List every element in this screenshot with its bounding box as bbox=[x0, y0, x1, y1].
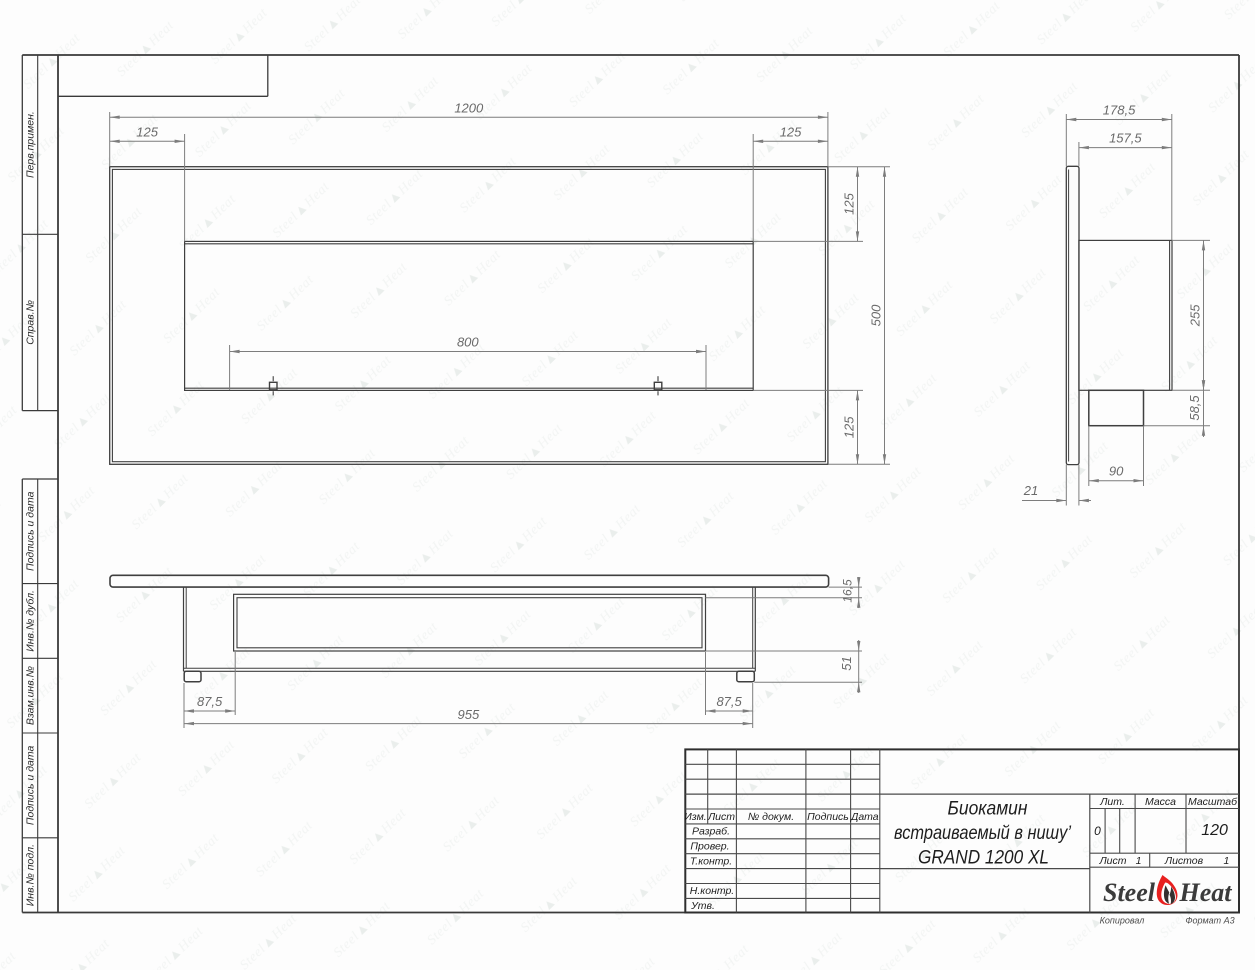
svg-text:800: 800 bbox=[457, 335, 479, 350]
svg-text:Провер.: Провер. bbox=[690, 841, 729, 853]
svg-text:GRAND 1200 XL: GRAND 1200 XL bbox=[918, 847, 1049, 868]
svg-text:157,5: 157,5 bbox=[1109, 131, 1142, 146]
svg-text:1200: 1200 bbox=[454, 101, 484, 116]
svg-text:Копировал: Копировал bbox=[1100, 916, 1145, 926]
svg-text:0: 0 bbox=[1094, 824, 1101, 838]
svg-text:21: 21 bbox=[1023, 483, 1038, 498]
svg-text:955: 955 bbox=[457, 707, 479, 722]
svg-text:1: 1 bbox=[1223, 855, 1229, 867]
svg-text:Формат А3: Формат А3 bbox=[1185, 916, 1234, 926]
svg-text:Подпись: Подпись bbox=[807, 811, 849, 823]
svg-text:178,5: 178,5 bbox=[1103, 103, 1136, 118]
svg-text:Утв.: Утв. bbox=[690, 900, 715, 912]
svg-text:125: 125 bbox=[842, 192, 857, 214]
svg-text:255: 255 bbox=[1188, 304, 1203, 327]
svg-text:Инв.№ дубл.: Инв.№ дубл. bbox=[25, 590, 37, 652]
svg-text:Масштаб: Масштаб bbox=[1188, 796, 1238, 808]
svg-text:Разраб.: Разраб. bbox=[692, 826, 730, 838]
svg-text:№ докум.: № докум. bbox=[748, 811, 794, 823]
svg-text:Н.контр.: Н.контр. bbox=[690, 885, 734, 897]
svg-text:Взам.инв.№: Взам.инв.№ bbox=[25, 666, 37, 725]
svg-text:500: 500 bbox=[869, 304, 884, 326]
svg-text:Листов: Листов bbox=[1164, 855, 1204, 867]
svg-text:58,5: 58,5 bbox=[1187, 395, 1202, 421]
svg-text:Масса: Масса bbox=[1145, 796, 1176, 808]
svg-text:87,5: 87,5 bbox=[716, 694, 742, 709]
svg-text:Дата: Дата bbox=[850, 811, 879, 823]
svg-text:Подпись и дата: Подпись и дата bbox=[25, 491, 37, 571]
svg-text:90: 90 bbox=[1109, 464, 1124, 479]
svg-text:Т.контр.: Т.контр. bbox=[690, 856, 732, 868]
svg-text:Лист: Лист bbox=[1098, 855, 1126, 867]
svg-text:Биокамин: Биокамин bbox=[948, 799, 1028, 820]
svg-text:Перв.примен.: Перв.примен. bbox=[25, 111, 37, 178]
svg-text:125: 125 bbox=[780, 125, 802, 140]
svg-text:125: 125 bbox=[842, 416, 857, 438]
svg-text:Steel: Steel bbox=[1103, 878, 1156, 907]
svg-text:Лист: Лист bbox=[707, 811, 735, 823]
svg-text:Heat: Heat bbox=[1179, 878, 1233, 907]
svg-text:1: 1 bbox=[1136, 855, 1142, 867]
svg-text:Изм.: Изм. bbox=[684, 811, 706, 823]
svg-text:Инв.№ подл.: Инв.№ подл. bbox=[25, 844, 37, 906]
svg-text:встраиваемый в нишу’: встраиваемый в нишу’ bbox=[894, 823, 1072, 844]
svg-text:51: 51 bbox=[839, 656, 854, 670]
svg-text:120: 120 bbox=[1201, 822, 1228, 839]
svg-text:16,5: 16,5 bbox=[841, 579, 855, 603]
svg-text:87,5: 87,5 bbox=[197, 694, 223, 709]
svg-text:Справ.№: Справ.№ bbox=[25, 300, 37, 345]
svg-text:Лит.: Лит. bbox=[1099, 796, 1125, 808]
svg-text:Подпись и дата: Подпись и дата bbox=[25, 746, 37, 826]
svg-text:125: 125 bbox=[136, 125, 158, 140]
